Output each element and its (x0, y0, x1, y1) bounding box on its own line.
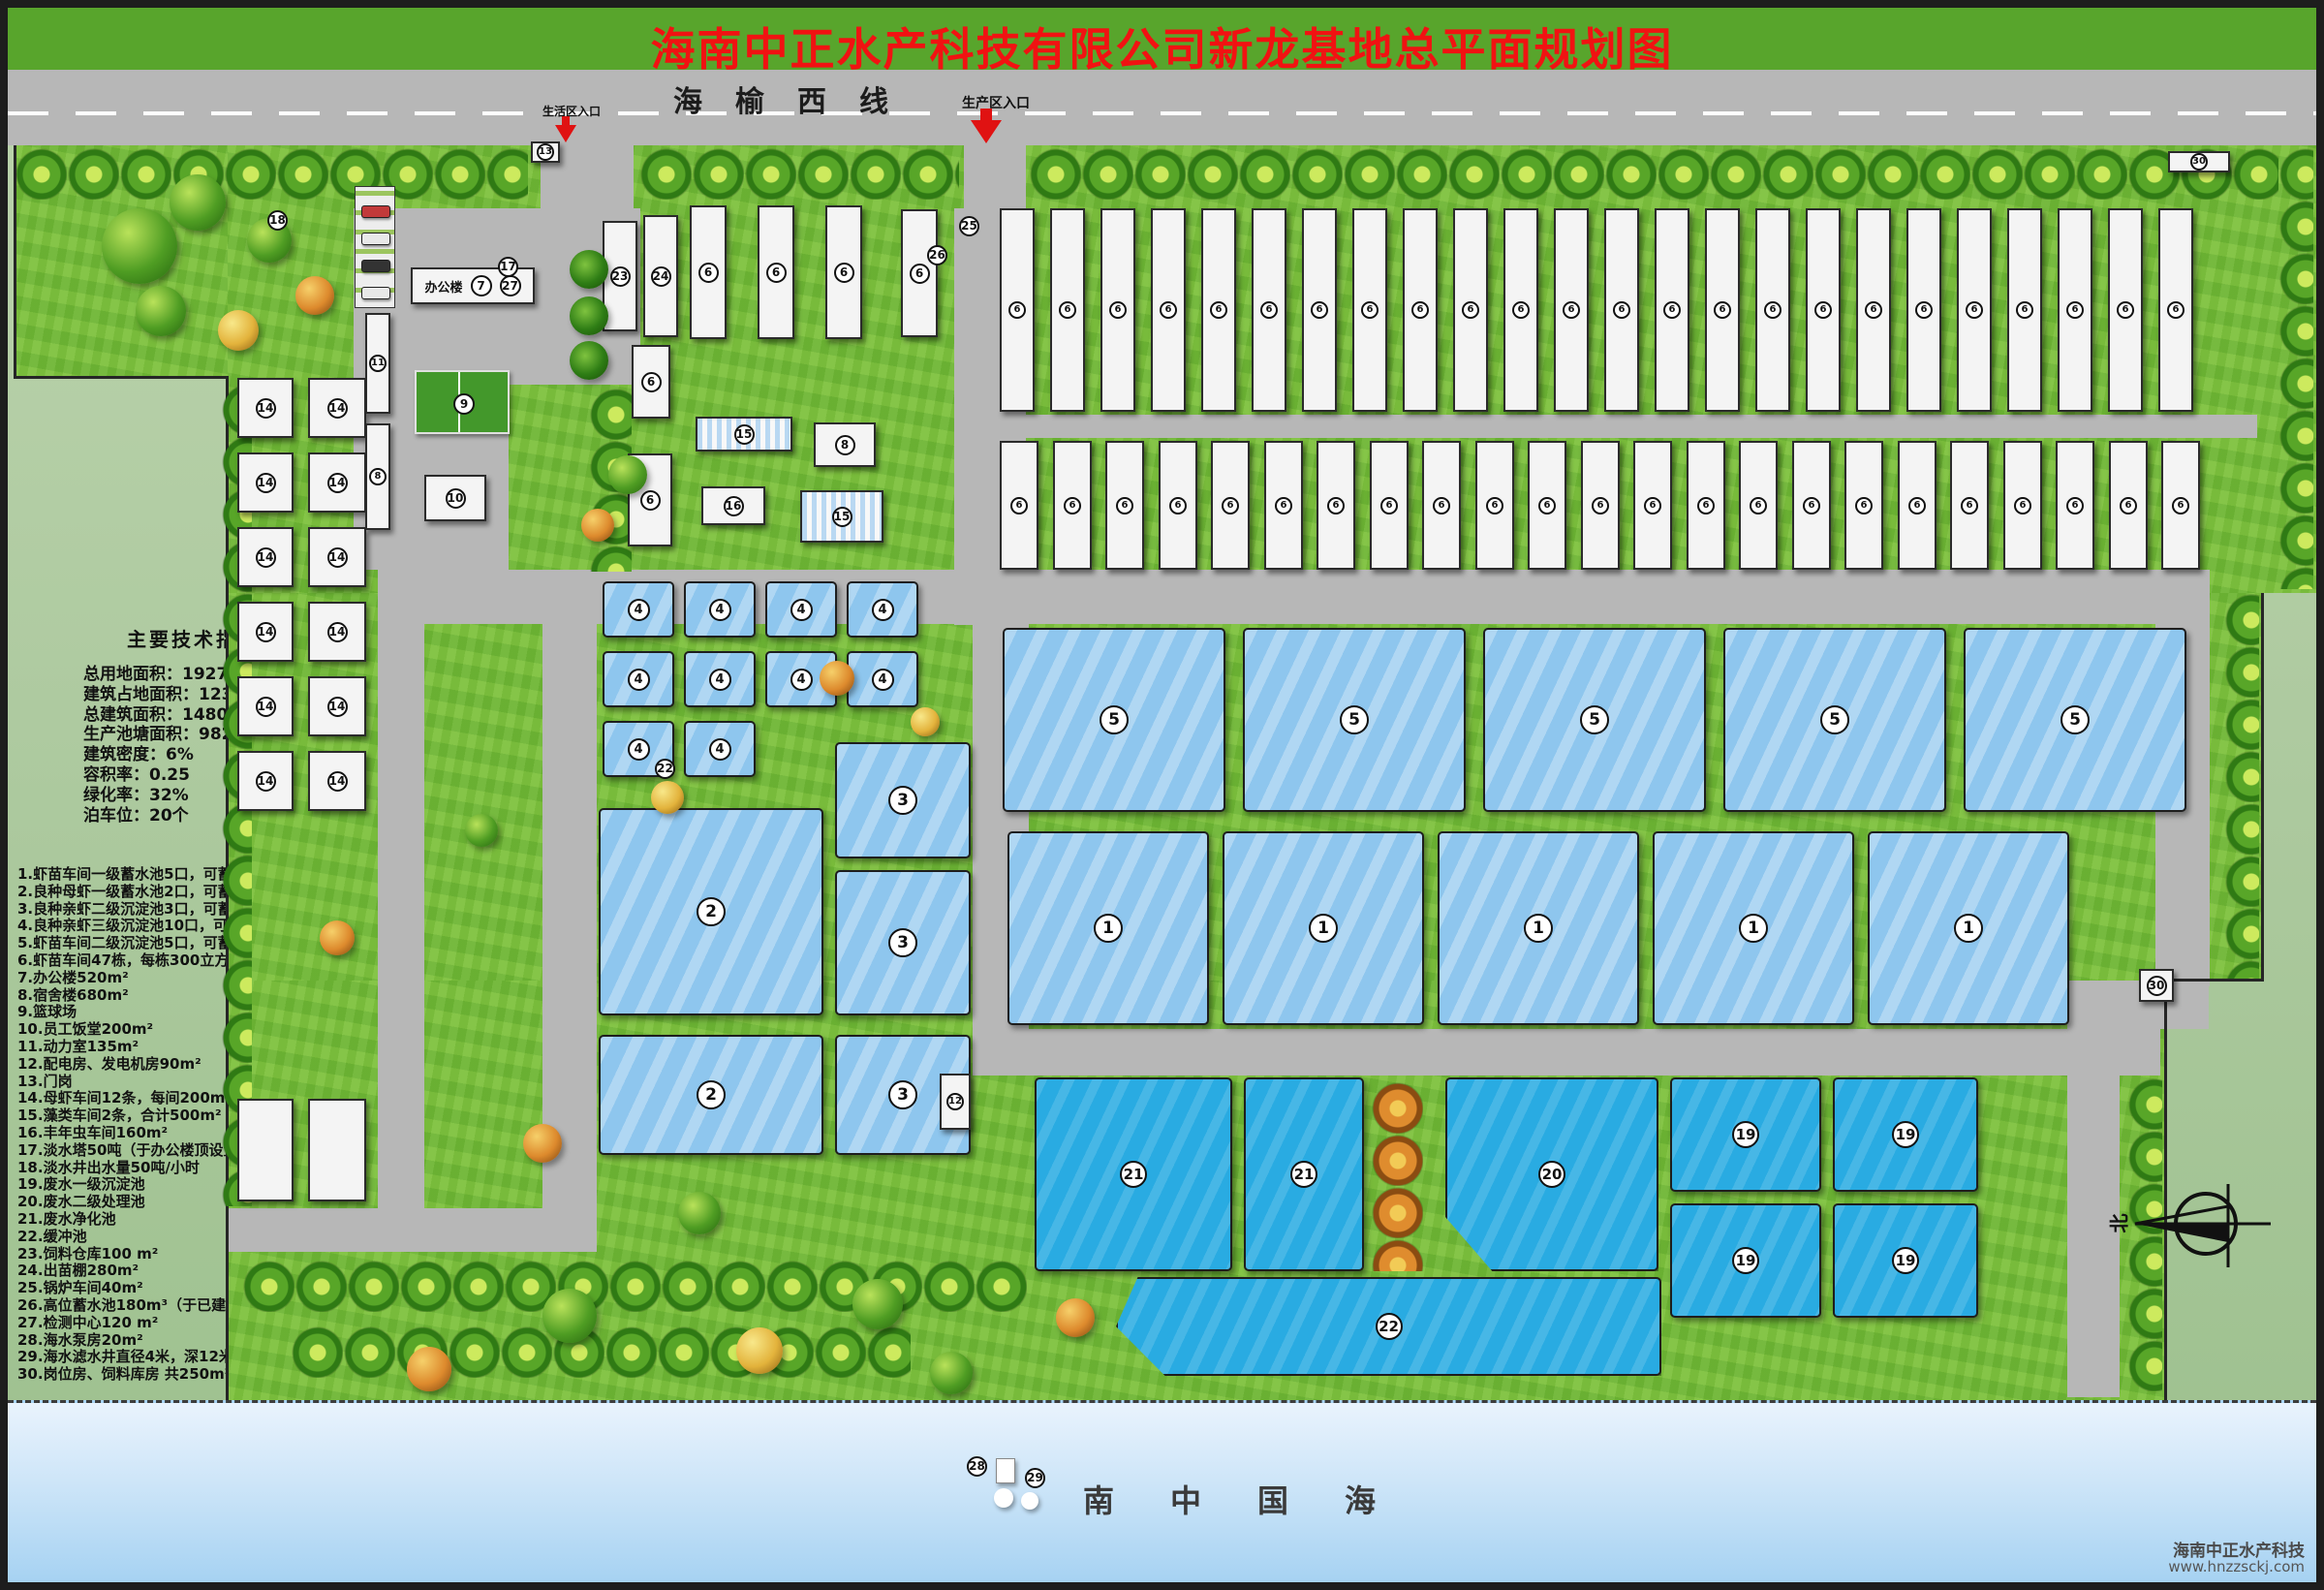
label-19: 19 (1892, 1247, 1919, 1274)
shrimp-workshop-building: 6 (1906, 208, 1941, 412)
label-6: 6 (1010, 497, 1028, 514)
label-6: 6 (1613, 301, 1630, 319)
label-6: 6 (766, 263, 787, 283)
label-6: 6 (641, 372, 662, 392)
building: 13 (531, 141, 560, 163)
building (308, 1099, 366, 1201)
label-27: 27 (500, 275, 521, 296)
label-6: 6 (1411, 301, 1429, 319)
pond: 2 (599, 1035, 823, 1155)
shrimp-workshop-building: 6 (2007, 208, 2042, 412)
label-4: 4 (709, 599, 731, 621)
building: 6 (901, 209, 938, 337)
label-6: 6 (2167, 301, 2185, 319)
label-18: 18 (267, 210, 288, 231)
label-6: 6 (2117, 301, 2134, 319)
label-5: 5 (1100, 705, 1129, 734)
label-17: 17 (498, 257, 518, 277)
label-1: 1 (1094, 914, 1123, 943)
tree-row (1029, 147, 2278, 200)
label-20: 20 (1538, 1161, 1565, 1188)
label-29: 29 (1025, 1468, 1045, 1488)
label-6: 6 (1160, 301, 1177, 319)
shrimp-workshop-building: 6 (1705, 208, 1740, 412)
label-19: 19 (1892, 1121, 1919, 1148)
shrimp-workshop-building: 6 (1755, 208, 1790, 412)
parked-car (361, 233, 390, 245)
shrimp-workshop-building: 6 (2109, 441, 2148, 570)
label-1: 1 (1739, 914, 1768, 943)
shrimp-workshop-building: 6 (1950, 441, 1989, 570)
label-12: 12 (946, 1093, 964, 1110)
pond: 5 (1723, 628, 1946, 812)
tree-icon (570, 296, 608, 335)
mother-shrimp-workshop-building: 14 (237, 676, 294, 736)
label-3: 3 (888, 1080, 917, 1109)
mother-shrimp-workshop-building: 14 (237, 602, 294, 662)
pond: 4 (684, 581, 756, 638)
map-number-label: 17 (498, 256, 519, 277)
compass-icon (2127, 1182, 2273, 1269)
tree-icon (295, 276, 334, 315)
mother-shrimp-workshop-building: 14 (308, 452, 366, 513)
mother-shrimp-workshop-building: 14 (237, 751, 294, 811)
shrimp-workshop-building: 6 (1687, 441, 1725, 570)
shrimp-workshop-building: 6 (1655, 208, 1689, 412)
label-6: 6 (1169, 497, 1187, 514)
label-1: 1 (1524, 914, 1553, 943)
shrimp-workshop-building: 6 (1053, 441, 1092, 570)
label-1: 1 (1309, 914, 1338, 943)
shrimp-workshop-building: 6 (1554, 208, 1589, 412)
building: 30 (2168, 151, 2230, 172)
shrimp-workshop-building: 6 (2003, 441, 2042, 570)
label-6: 6 (1592, 497, 1609, 514)
shrimp-workshop-building: 6 (1201, 208, 1236, 412)
label-24: 24 (651, 266, 671, 287)
shrimp-workshop-building: 6 (2056, 441, 2094, 570)
building: 16 (701, 486, 765, 525)
office-building-label: 办公楼 (424, 277, 462, 296)
label-6: 6 (1750, 497, 1767, 514)
building: 15 (800, 490, 883, 543)
pond: 19 (1670, 1077, 1821, 1192)
mother-shrimp-workshop-building: 14 (308, 676, 366, 736)
building: 24 (643, 215, 678, 337)
label-3: 3 (888, 786, 917, 815)
building: 15 (696, 417, 792, 452)
pond: 5 (1003, 628, 1225, 812)
label-19: 19 (1732, 1121, 1759, 1148)
map-number-label: 25 (959, 215, 980, 236)
building: 6 (632, 345, 670, 419)
shrimp-workshop-building: 6 (1604, 208, 1639, 412)
building: 6 (690, 205, 727, 339)
building: 8 (365, 423, 390, 530)
internal-road (1000, 415, 2257, 438)
label-6: 6 (1222, 497, 1239, 514)
shrimp-workshop-building: 6 (1633, 441, 1672, 570)
shrimp-workshop-building: 6 (1159, 441, 1197, 570)
label-3: 3 (888, 928, 917, 957)
label-6: 6 (1462, 301, 1479, 319)
label-14: 14 (256, 771, 276, 792)
shrimp-workshop-building: 6 (1000, 208, 1035, 412)
shrimp-workshop-building: 6 (1317, 441, 1355, 570)
shrimp-workshop-building: 6 (1370, 441, 1409, 570)
tree-icon (102, 208, 177, 284)
label-14: 14 (327, 697, 348, 717)
label-14: 14 (327, 622, 348, 642)
pond: 22 (1116, 1277, 1661, 1376)
label-6: 6 (1663, 301, 1681, 319)
map-number-label: 28 (967, 1455, 988, 1477)
label-14: 14 (327, 398, 348, 419)
label-10: 10 (446, 488, 466, 509)
map-number-label: 29 (1025, 1467, 1046, 1488)
label-15: 15 (734, 424, 755, 445)
map-number-label: 18 (267, 209, 289, 231)
shrimp-workshop-building: 6 (1000, 441, 1038, 570)
pond: 1 (1438, 831, 1639, 1025)
shrimp-workshop-building: 6 (1792, 441, 1831, 570)
label-14: 14 (256, 398, 276, 419)
label-6: 6 (1260, 301, 1278, 319)
label-6: 6 (1697, 497, 1715, 514)
label-6: 6 (1059, 301, 1076, 319)
label-14: 14 (256, 622, 276, 642)
building (237, 1099, 294, 1201)
tree-icon (651, 781, 684, 814)
label-14: 14 (327, 473, 348, 493)
label-6: 6 (698, 263, 719, 283)
tree-icon (570, 250, 608, 289)
tree-icon (218, 310, 259, 351)
label-7: 7 (471, 275, 492, 296)
label-6: 6 (1361, 301, 1379, 319)
label-1: 1 (1954, 914, 1983, 943)
label-6: 6 (1855, 497, 1873, 514)
label-23: 23 (610, 266, 631, 287)
pond: 4 (603, 651, 674, 707)
pond: 4 (847, 651, 918, 707)
label-26: 26 (927, 245, 947, 265)
pond: 4 (603, 581, 674, 638)
label-6: 6 (1865, 301, 1882, 319)
building: 30 (2139, 969, 2174, 1002)
tree-row (639, 147, 959, 200)
tree-icon (542, 1289, 597, 1343)
pond: 19 (1833, 1203, 1978, 1318)
pond: 2 (599, 808, 823, 1015)
parked-car (361, 205, 390, 218)
label-28: 28 (967, 1456, 987, 1477)
pond: 21 (1244, 1077, 1364, 1271)
internal-road (228, 1208, 596, 1252)
tree-row (15, 147, 528, 200)
pond: 21 (1035, 1077, 1232, 1271)
label-30: 30 (2190, 153, 2208, 171)
label-4: 4 (628, 669, 650, 691)
pond: 5 (1243, 628, 1466, 812)
label-14: 14 (256, 547, 276, 568)
label-14: 14 (327, 547, 348, 568)
label-14: 14 (256, 473, 276, 493)
label-13: 13 (537, 143, 554, 161)
label-21: 21 (1120, 1161, 1147, 1188)
pond: 19 (1833, 1077, 1978, 1192)
mother-shrimp-workshop-building: 14 (237, 452, 294, 513)
label-9: 9 (453, 393, 475, 415)
label-6: 6 (1538, 497, 1556, 514)
label-6: 6 (1714, 301, 1731, 319)
shrimp-workshop-building: 6 (1403, 208, 1438, 412)
label-6: 6 (1644, 497, 1661, 514)
label-30: 30 (2147, 976, 2167, 996)
label-4: 4 (709, 738, 731, 761)
label-6: 6 (1814, 301, 1832, 319)
label-6: 6 (2066, 301, 2084, 319)
basketball-court: 9 (415, 370, 510, 434)
label-19: 19 (1732, 1247, 1759, 1274)
label-6: 6 (1275, 497, 1292, 514)
shrimp-workshop-building: 6 (2108, 208, 2143, 412)
label-6: 6 (2066, 497, 2084, 514)
tree-icon (320, 920, 355, 955)
shrimp-workshop-building: 6 (1806, 208, 1841, 412)
label-4: 4 (628, 738, 650, 761)
tree-row (291, 1325, 911, 1378)
shrimp-workshop-building: 6 (1856, 208, 1891, 412)
map-number-label: 22 (655, 758, 676, 779)
seawater-pump-house (996, 1458, 1015, 1483)
label-6: 6 (1311, 301, 1328, 319)
map-number-label: 26 (927, 244, 948, 265)
tree-icon (407, 1347, 451, 1391)
parked-car (361, 287, 390, 299)
internal-road (2067, 981, 2209, 1029)
label-5: 5 (1340, 705, 1369, 734)
tree-icon (570, 341, 608, 380)
pond: 1 (1653, 831, 1854, 1025)
pond: 4 (684, 651, 756, 707)
sea-name-label: 南中国海 (1083, 1477, 1432, 1521)
mother-shrimp-workshop-building: 14 (308, 527, 366, 587)
tree-icon (136, 286, 186, 336)
tree-icon (581, 509, 614, 542)
internal-road (964, 145, 1026, 211)
label-6: 6 (1433, 497, 1450, 514)
label-6: 6 (1966, 301, 1983, 319)
tree-icon (170, 174, 226, 231)
label-4: 4 (790, 599, 813, 621)
pond: 4 (684, 721, 756, 777)
label-6: 6 (640, 490, 661, 511)
tree-icon (911, 707, 940, 736)
label-6: 6 (1210, 301, 1227, 319)
shrimp-workshop-building: 6 (1252, 208, 1286, 412)
building: 12 (940, 1074, 971, 1130)
tree-icon (523, 1124, 562, 1163)
label-21: 21 (1290, 1161, 1317, 1188)
pond: 5 (1483, 628, 1706, 812)
shrimp-workshop-building: 6 (1528, 441, 1566, 570)
shrimp-workshop-building: 6 (1264, 441, 1303, 570)
internal-road (974, 1029, 2160, 1076)
label-6: 6 (1008, 301, 1026, 319)
building: 6 (758, 205, 794, 339)
tree-icon (820, 661, 854, 696)
label-2: 2 (697, 897, 726, 926)
label-5: 5 (2061, 705, 2090, 734)
shrimp-workshop-building: 6 (1503, 208, 1538, 412)
tree-row (1371, 1081, 1439, 1271)
label-4: 4 (709, 669, 731, 691)
pond: 3 (835, 742, 971, 858)
shrimp-workshop-building: 6 (1105, 441, 1144, 570)
label-6: 6 (1563, 301, 1580, 319)
shrimp-workshop-building: 6 (1739, 441, 1778, 570)
pond: 19 (1670, 1203, 1821, 1318)
label-6: 6 (1116, 497, 1133, 514)
mother-shrimp-workshop-building: 14 (308, 602, 366, 662)
tree-icon (1056, 1298, 1095, 1337)
pond: 1 (1223, 831, 1424, 1025)
label-22: 22 (655, 759, 675, 779)
label-11: 11 (369, 355, 387, 372)
label-6: 6 (2172, 497, 2189, 514)
label-6: 6 (1803, 497, 1820, 514)
tree-icon (930, 1352, 973, 1394)
label-16: 16 (724, 496, 744, 516)
label-6: 6 (1512, 301, 1530, 319)
building: 10 (424, 475, 486, 521)
label-4: 4 (628, 599, 650, 621)
label-25: 25 (959, 216, 979, 236)
shrimp-workshop-building: 6 (1100, 208, 1135, 412)
label-14: 14 (256, 697, 276, 717)
building: 8 (814, 422, 876, 467)
label-6: 6 (910, 264, 930, 284)
label-6: 6 (2120, 497, 2137, 514)
label-6: 6 (1380, 497, 1398, 514)
label-6: 6 (1486, 497, 1503, 514)
label-4: 4 (872, 669, 894, 691)
tree-row (242, 1260, 1027, 1312)
shrimp-workshop-building: 6 (2058, 208, 2092, 412)
tree-row (2224, 593, 2259, 979)
sea-filter-well (1021, 1492, 1038, 1510)
mother-shrimp-workshop-building: 14 (308, 751, 366, 811)
pond: 3 (835, 870, 971, 1015)
label-6: 6 (1764, 301, 1782, 319)
tree-icon (852, 1279, 903, 1329)
shrimp-workshop-building: 6 (1211, 441, 1250, 570)
label-6: 6 (1327, 497, 1345, 514)
label-6: 6 (2014, 497, 2031, 514)
shrimp-workshop-building: 6 (1151, 208, 1186, 412)
site-boundary-line (14, 376, 229, 379)
sea-filter-well (994, 1488, 1013, 1508)
shrimp-workshop-building: 6 (1352, 208, 1387, 412)
pond: 1 (1007, 831, 1209, 1025)
label-6: 6 (2016, 301, 2033, 319)
shrimp-workshop-building: 6 (1957, 208, 1992, 412)
label-4: 4 (872, 599, 894, 621)
shrimp-workshop-building: 6 (1453, 208, 1488, 412)
label-22: 22 (1376, 1313, 1403, 1340)
shrimp-workshop-building: 6 (1581, 441, 1620, 570)
label-6: 6 (1915, 301, 1933, 319)
building: 6 (825, 205, 862, 339)
pond: 5 (1964, 628, 2186, 812)
tree-icon (465, 814, 498, 847)
label-6: 6 (1961, 497, 1978, 514)
label-6: 6 (1109, 301, 1127, 319)
tree-icon (678, 1192, 721, 1234)
label-2: 2 (697, 1080, 726, 1109)
label-5: 5 (1580, 705, 1609, 734)
label-14: 14 (327, 771, 348, 792)
site-boundary-line (2261, 593, 2264, 981)
label-8: 8 (835, 435, 855, 455)
mother-shrimp-workshop-building: 14 (308, 378, 366, 438)
shrimp-workshop-building: 6 (1475, 441, 1514, 570)
pond: 4 (765, 581, 837, 638)
shrimp-workshop-building: 6 (1302, 208, 1337, 412)
shrimp-workshop-building: 6 (2161, 441, 2200, 570)
label-6: 6 (834, 263, 854, 283)
label-5: 5 (1820, 705, 1849, 734)
label-8: 8 (369, 468, 387, 485)
north-label: 北 (2104, 1214, 2132, 1233)
shrimp-workshop-building: 6 (2158, 208, 2193, 412)
label-6: 6 (1908, 497, 1926, 514)
parked-car (361, 260, 390, 272)
watermark-url: www.hnzzsckj.com (2168, 1558, 2305, 1575)
tree-icon (736, 1327, 783, 1374)
mother-shrimp-workshop-building: 14 (237, 378, 294, 438)
tree-row (2278, 147, 2313, 589)
label-15: 15 (832, 507, 852, 527)
pond: 1 (1868, 831, 2069, 1025)
site-plan-canvas: 海南中正水产科技有限公司新龙基地总平面规划图 海榆西线 生活区入口 生产区入口 … (0, 0, 2324, 1590)
label-6: 6 (1064, 497, 1081, 514)
site-boundary-line (2164, 979, 2264, 982)
pond: 20 (1445, 1077, 1658, 1271)
shrimp-workshop-building: 6 (1422, 441, 1461, 570)
tree-icon (608, 455, 647, 494)
shrimp-workshop-building: 6 (1898, 441, 1937, 570)
shrimp-workshop-building: 6 (1844, 441, 1883, 570)
shrimp-workshop-building: 6 (1050, 208, 1085, 412)
building: 11 (365, 313, 390, 414)
mother-shrimp-workshop-building: 14 (237, 527, 294, 587)
pond: 4 (847, 581, 918, 638)
label-4: 4 (790, 669, 813, 691)
